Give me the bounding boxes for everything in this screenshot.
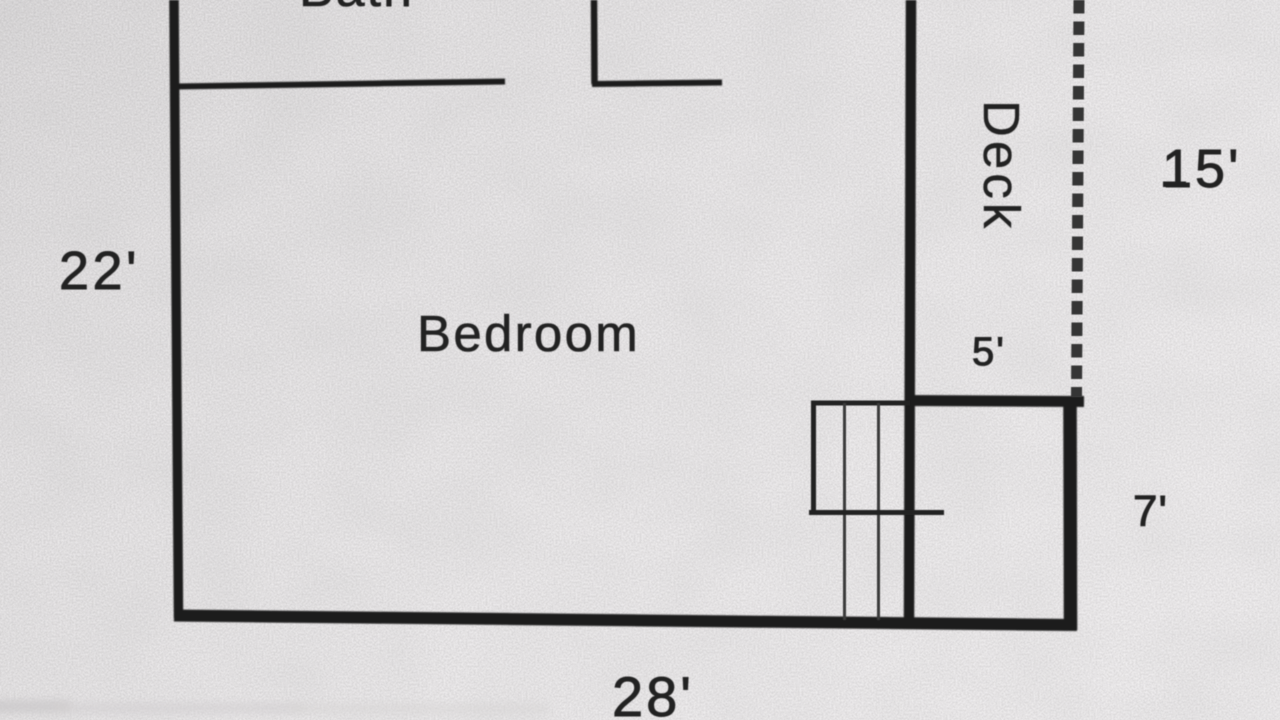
svg-text:Bath: Bath [299,0,414,18]
svg-text:Bedroom: Bedroom [417,305,640,362]
svg-text:15': 15' [1162,139,1241,199]
svg-text:28': 28' [612,665,694,720]
svg-text:Deck: Deck [973,100,1030,232]
svg-text:22': 22' [59,241,140,301]
svg-text:7': 7' [1133,487,1168,536]
svg-text:5': 5' [972,330,1006,374]
